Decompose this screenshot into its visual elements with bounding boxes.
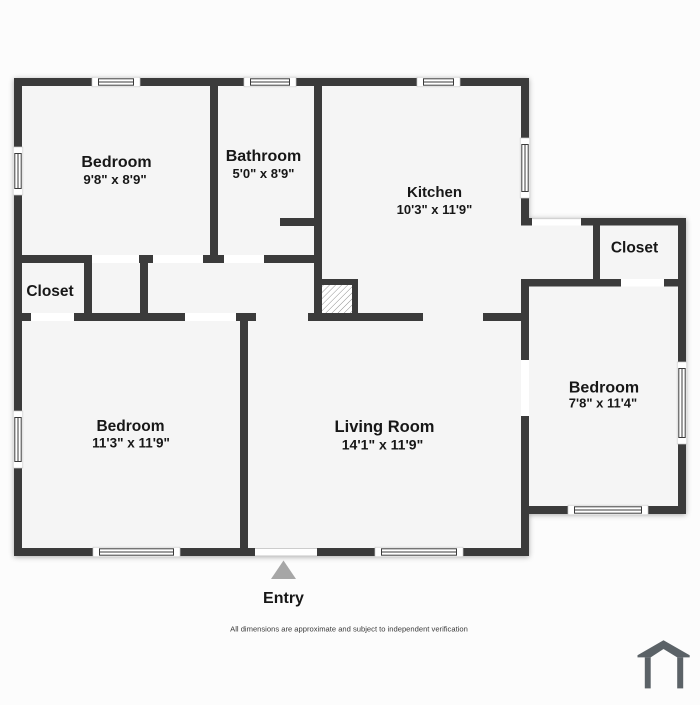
svg-text:All dimensions are approximate: All dimensions are approximate and subje… <box>230 625 468 634</box>
svg-text:7'8" x 11'4": 7'8" x 11'4" <box>569 396 637 411</box>
svg-text:Closet: Closet <box>26 283 73 300</box>
svg-text:Bedroom: Bedroom <box>569 380 639 397</box>
svg-text:Entry: Entry <box>263 590 304 607</box>
svg-text:5'0" x 8'9": 5'0" x 8'9" <box>233 166 295 181</box>
svg-text:14'1" x 11'9": 14'1" x 11'9" <box>342 437 423 453</box>
svg-text:11'3" x 11'9": 11'3" x 11'9" <box>92 436 170 451</box>
svg-text:Bedroom: Bedroom <box>96 418 164 435</box>
svg-text:10'3" x 11'9": 10'3" x 11'9" <box>397 202 473 217</box>
svg-text:9'8" x 8'9": 9'8" x 8'9" <box>83 172 146 187</box>
svg-text:Bathroom: Bathroom <box>226 148 302 165</box>
svg-text:Closet: Closet <box>611 240 658 257</box>
svg-text:Kitchen: Kitchen <box>407 184 462 201</box>
svg-text:Living Room: Living Room <box>335 418 435 436</box>
svg-text:Bedroom: Bedroom <box>81 154 151 171</box>
